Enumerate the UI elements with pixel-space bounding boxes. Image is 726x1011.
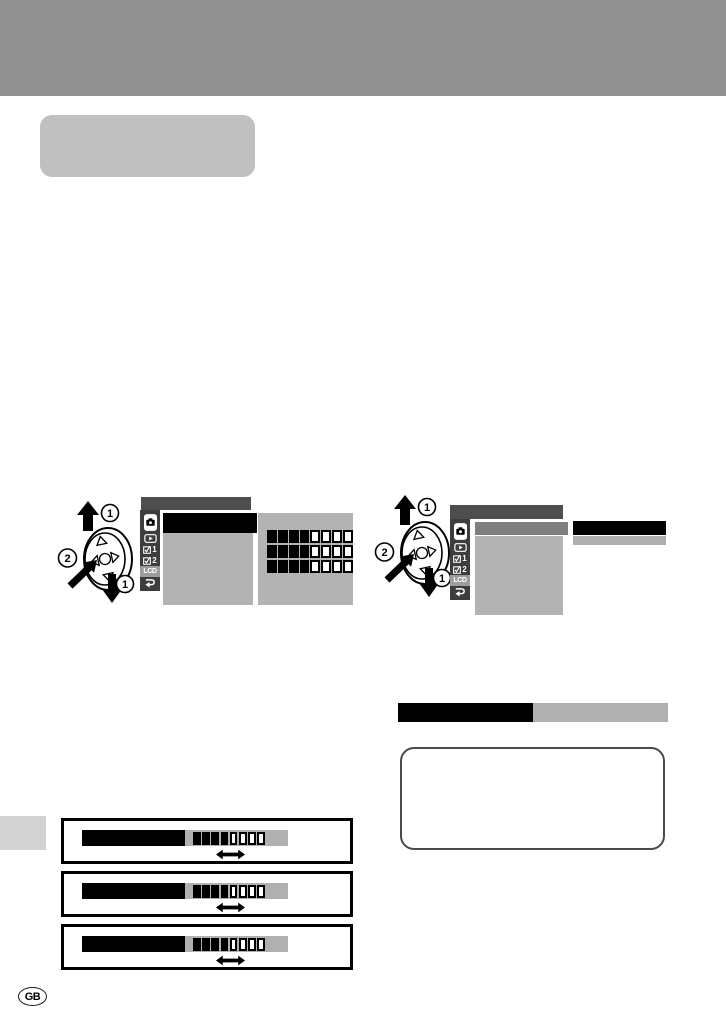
step-1-badge-bottom: 1 — [117, 576, 134, 593]
level-square-empty — [310, 560, 320, 573]
checkbox-icon — [453, 554, 461, 563]
setting-name-bar — [82, 883, 185, 899]
tab-lcd: LCD — [450, 575, 470, 586]
setting-value-subbar — [573, 536, 666, 545]
svg-text:1: 1 — [424, 502, 430, 514]
level-square-filled — [193, 832, 201, 845]
level-row — [193, 885, 265, 898]
tab-lcd: LCD — [140, 566, 160, 577]
menu-title-bar — [141, 497, 251, 510]
level-square-filled — [289, 530, 299, 543]
level-setting-box — [61, 871, 353, 917]
omni-selector-diagram-right: 1 2 1 — [372, 492, 462, 604]
language-badge: GB — [18, 987, 47, 1006]
level-square-filled — [300, 560, 310, 573]
camera-menu-screen-left: 1 2 LCD — [140, 497, 355, 605]
level-square-filled — [211, 885, 219, 898]
tab-settings-1: 1 — [140, 544, 160, 555]
tab-number: 1 — [462, 555, 466, 563]
level-square-empty — [310, 530, 320, 543]
level-square-empty — [230, 885, 238, 898]
svg-text:1: 1 — [122, 579, 128, 591]
tab-number: 1 — [152, 546, 156, 554]
step-2-badge: 2 — [59, 549, 77, 567]
lcd-label: LCD — [143, 568, 156, 575]
level-square-filled — [300, 530, 310, 543]
tab-settings-2: 2 — [140, 555, 160, 566]
tab-shooting — [140, 512, 160, 533]
brightness-settings-panel — [258, 513, 353, 605]
level-square-filled — [221, 832, 229, 845]
step-1-badge-top: 1 — [102, 505, 119, 522]
level-row — [193, 938, 265, 951]
camera-menu-screen-right: 1 2 LCD — [450, 505, 668, 615]
level-square-filled — [221, 885, 229, 898]
menu-tab-column: 1 2 LCD — [450, 519, 470, 600]
level-setting-box — [61, 924, 353, 970]
left-right-arrow-icon — [216, 902, 245, 913]
play-icon — [144, 534, 157, 543]
selected-menu-row — [163, 513, 257, 533]
level-square-filled — [202, 938, 210, 951]
level-square-empty — [248, 832, 256, 845]
level-square-filled — [202, 832, 210, 845]
level-square-empty — [230, 832, 238, 845]
checkbox-icon — [143, 545, 151, 554]
level-square-empty — [239, 938, 247, 951]
level-square-empty — [332, 545, 342, 558]
setting-name-bar — [82, 830, 185, 846]
tab-settings-1: 1 — [450, 553, 470, 564]
level-indicator-bar — [185, 883, 288, 899]
heading-bar-gray — [533, 703, 668, 722]
level-square-empty — [239, 885, 247, 898]
svg-text:2: 2 — [381, 547, 387, 559]
level-square-empty — [343, 530, 353, 543]
level-square-empty — [257, 832, 265, 845]
tab-return — [140, 577, 160, 588]
heading-bar-black — [398, 703, 533, 722]
left-right-arrow-icon — [216, 955, 245, 966]
level-square-empty — [332, 560, 342, 573]
camera-icon — [454, 523, 467, 540]
level-square-empty — [257, 938, 265, 951]
menu-list-area — [163, 533, 253, 605]
level-square-filled — [221, 938, 229, 951]
level-square-empty — [257, 885, 265, 898]
level-square-filled — [289, 545, 299, 558]
menu-list-area — [475, 536, 563, 615]
level-square-filled — [211, 832, 219, 845]
level-square-empty — [321, 530, 331, 543]
svg-text:1: 1 — [439, 573, 445, 585]
level-square-empty — [343, 560, 353, 573]
step-2-badge: 2 — [376, 543, 394, 561]
level-row — [193, 832, 265, 845]
level-square-filled — [267, 530, 277, 543]
level-square-empty — [230, 938, 238, 951]
section-title-pill — [40, 115, 255, 177]
tab-playback — [140, 533, 160, 544]
level-square-filled — [267, 560, 277, 573]
level-square-empty — [332, 530, 342, 543]
level-row — [267, 530, 353, 543]
scroll-up-arrow-icon — [394, 495, 416, 525]
return-arrow-icon — [144, 578, 156, 588]
level-square-filled — [278, 545, 288, 558]
tab-number: 2 — [462, 566, 466, 574]
level-square-empty — [248, 938, 256, 951]
level-square-filled — [193, 938, 201, 951]
omni-selector-diagram-left: 1 2 1 — [55, 498, 145, 610]
level-square-empty — [321, 545, 331, 558]
level-square-empty — [248, 885, 256, 898]
menu-tab-column: 1 2 LCD — [140, 510, 160, 591]
level-indicator-bar — [185, 936, 288, 952]
level-row — [267, 545, 353, 558]
setting-value-bar — [573, 521, 666, 535]
checkbox-icon — [453, 565, 461, 574]
page-header-banner — [0, 0, 726, 96]
level-square-filled — [193, 885, 201, 898]
level-square-filled — [211, 938, 219, 951]
tab-number: 2 — [152, 557, 156, 565]
page-margin-tab — [0, 816, 46, 850]
note-box — [400, 747, 665, 850]
setting-name-bar — [82, 936, 185, 952]
play-icon — [454, 543, 467, 552]
level-square-empty — [310, 545, 320, 558]
tab-shooting — [450, 521, 470, 542]
step-1-badge-top: 1 — [419, 499, 436, 516]
level-square-empty — [321, 560, 331, 573]
manual-page: 1 2 1 — [0, 0, 726, 1011]
checkbox-icon — [143, 556, 151, 565]
tab-return — [450, 586, 470, 597]
svg-text:2: 2 — [64, 553, 70, 565]
left-right-arrow-icon — [216, 849, 245, 860]
scroll-up-arrow-icon — [77, 501, 99, 531]
level-row — [267, 560, 353, 573]
lcd-label: LCD — [453, 577, 466, 584]
return-arrow-icon — [454, 587, 466, 597]
svg-text:1: 1 — [107, 508, 113, 520]
level-square-filled — [278, 560, 288, 573]
subsection-heading-bar — [398, 703, 668, 722]
level-square-filled — [278, 530, 288, 543]
camera-icon — [144, 514, 157, 531]
selected-menu-row — [475, 522, 568, 535]
level-setting-box — [61, 818, 353, 864]
step-1-badge-bottom: 1 — [434, 570, 451, 587]
tab-settings-2: 2 — [450, 564, 470, 575]
tab-playback — [450, 542, 470, 553]
level-square-empty — [343, 545, 353, 558]
level-square-filled — [300, 545, 310, 558]
level-square-filled — [202, 885, 210, 898]
level-square-empty — [239, 832, 247, 845]
level-square-filled — [289, 560, 299, 573]
menu-title-bar — [450, 505, 563, 519]
level-square-filled — [267, 545, 277, 558]
level-indicator-bar — [185, 830, 288, 846]
